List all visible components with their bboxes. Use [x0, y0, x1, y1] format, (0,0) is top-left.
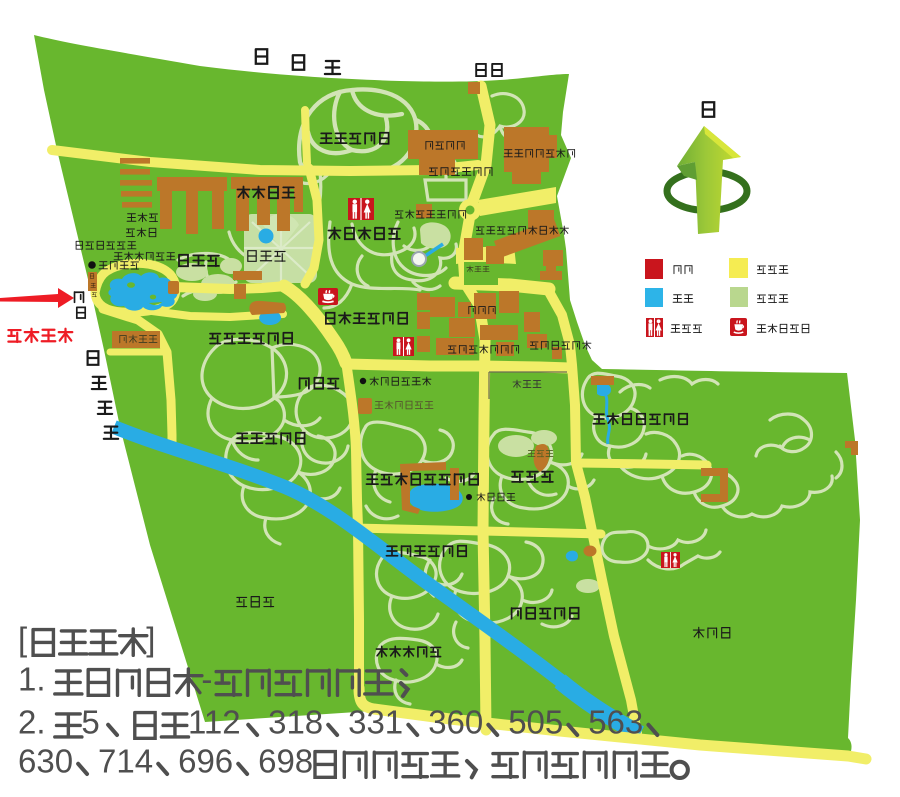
svg-text:331: 331 [348, 704, 403, 741]
svg-text:1.: 1. [18, 661, 46, 698]
svg-text:318: 318 [268, 704, 323, 741]
svg-text:714: 714 [98, 743, 153, 780]
svg-text:[: [ [18, 621, 27, 658]
svg-text:563: 563 [588, 704, 643, 741]
svg-text:696: 696 [178, 743, 233, 780]
svg-text:5: 5 [81, 704, 99, 741]
svg-text:2.: 2. [18, 704, 46, 741]
svg-text:112: 112 [188, 704, 241, 741]
svg-text:505: 505 [508, 704, 563, 741]
svg-text:360: 360 [428, 704, 483, 741]
svg-text:]: ] [146, 621, 155, 658]
svg-text:698: 698 [258, 743, 313, 780]
svg-text:630: 630 [18, 743, 73, 780]
svg-text:-: - [201, 661, 212, 698]
